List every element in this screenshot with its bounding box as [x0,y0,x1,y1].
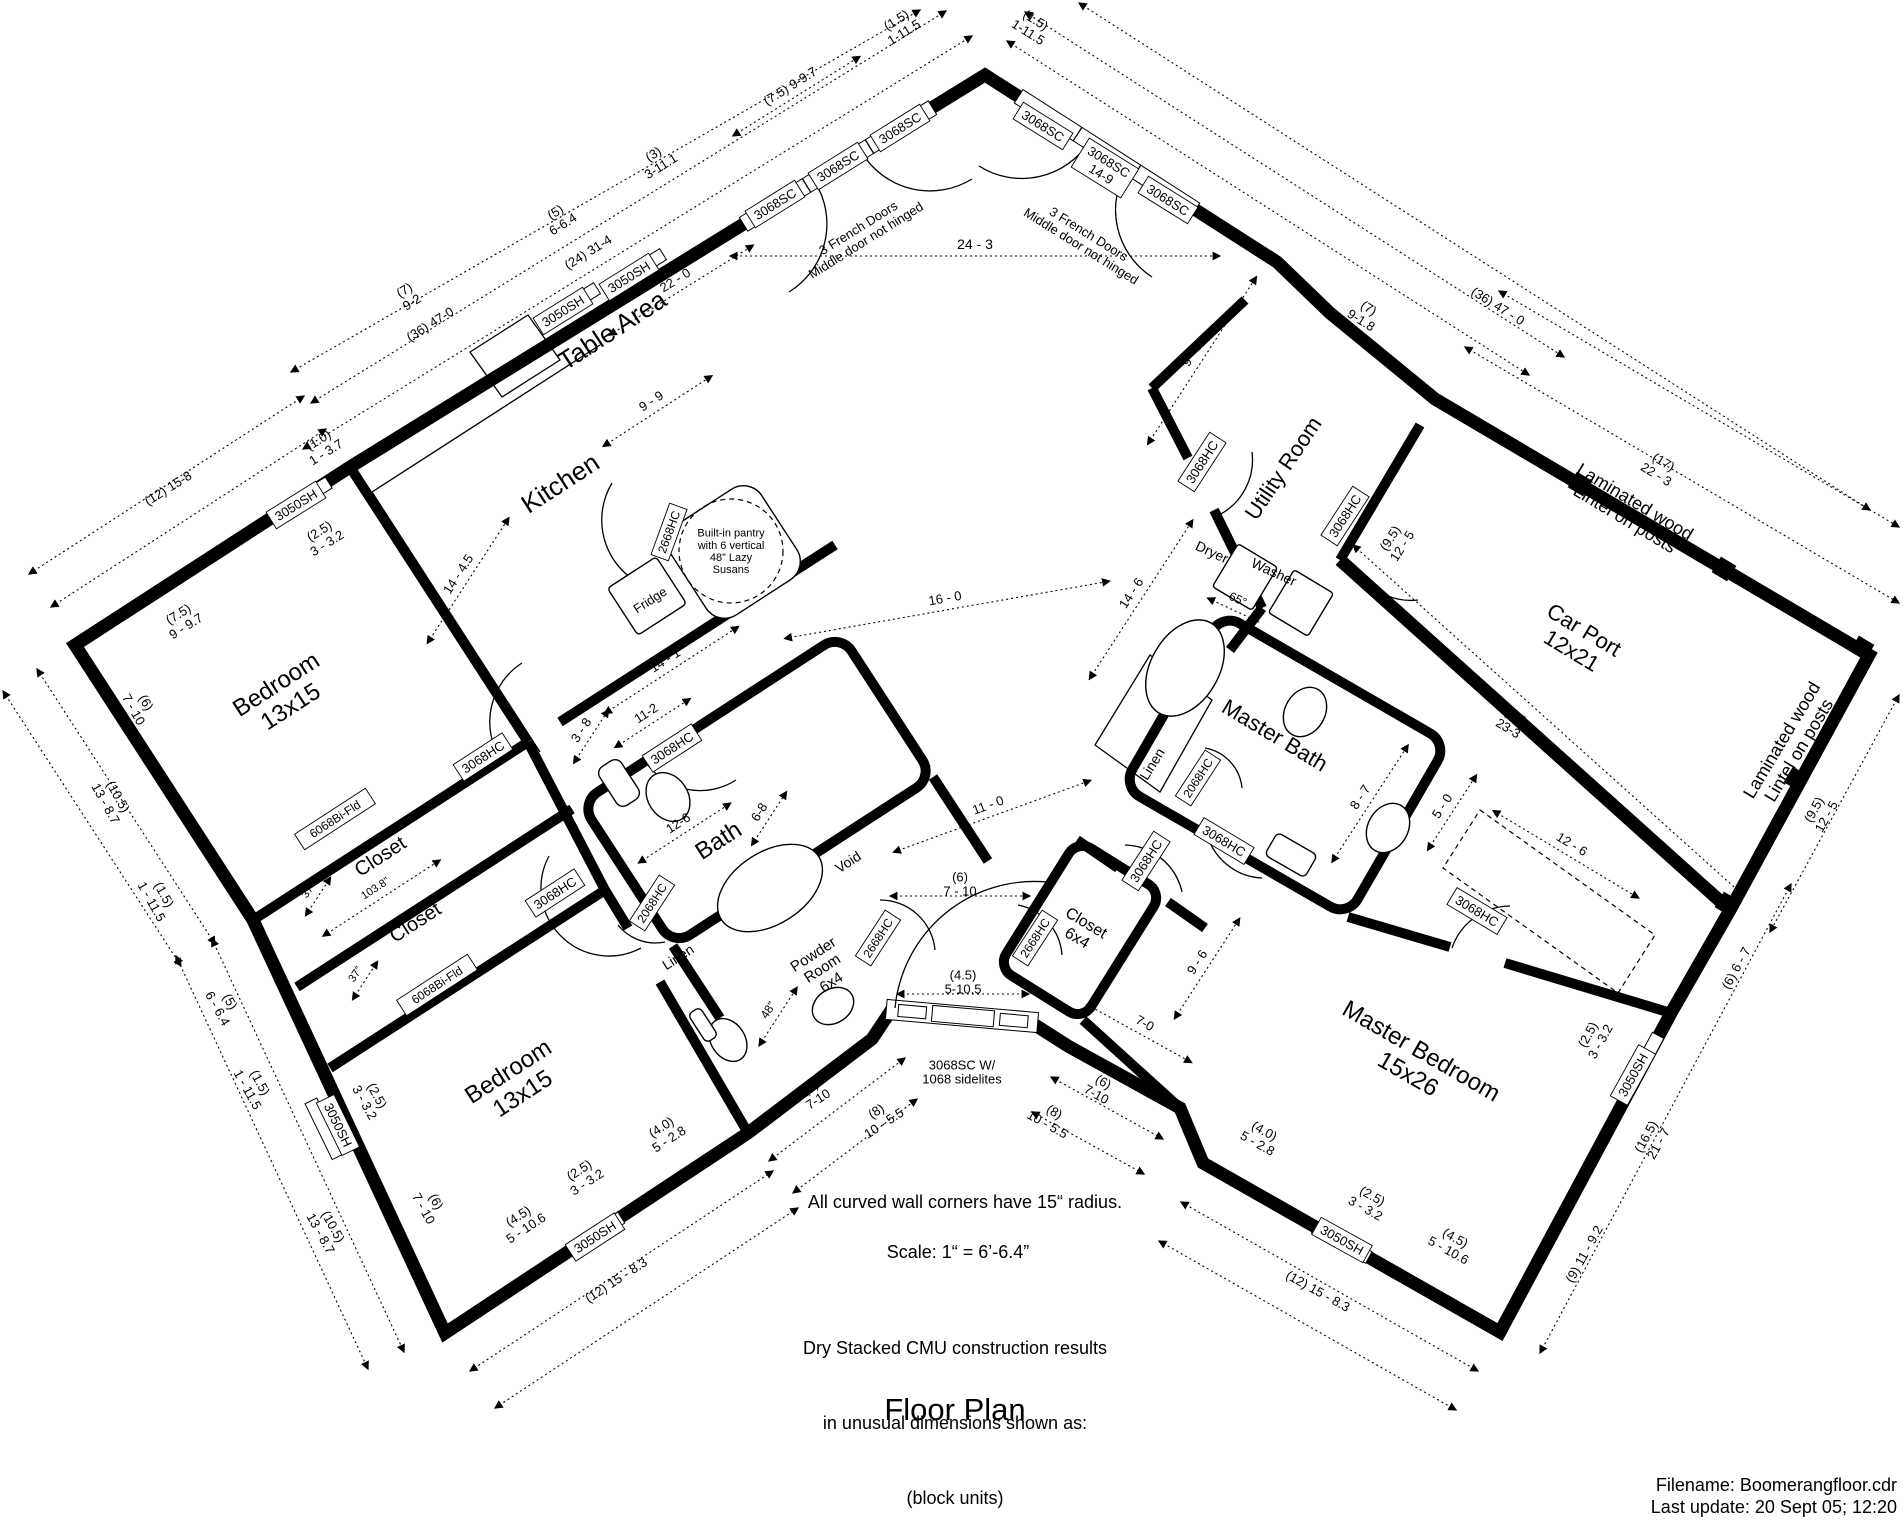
svg-text:(4.5)5-10.5: (4.5)5-10.5 [945,967,982,996]
svg-text:6068Bi-Fld: 6068Bi-Fld [307,797,363,840]
svg-text:9 - 9: 9 - 9 [636,388,666,415]
svg-text:12 - 6: 12 - 6 [1554,829,1590,859]
dim: (1.5)1 - 11.5 [231,1060,278,1112]
svg-text:Car Port12x21: Car Port12x21 [1530,598,1626,682]
svg-text:(8)10 - 5.5: (8)10 - 5.5 [854,1093,907,1142]
dim: (6) 6 - 7 [1718,944,1753,991]
dim: (1.5)1 - 11.5 [135,872,182,924]
note-french-doors-right: 3 French DoorsMiddle door not hinged [1021,193,1149,288]
svg-text:(1.5)1 - 11.5: (1.5)1 - 11.5 [135,872,182,924]
svg-text:16 - 0: 16 - 0 [927,588,962,609]
entry-door [885,999,1038,1032]
svg-text:9 - 6: 9 - 6 [1184,947,1211,977]
svg-text:(6) 6 - 7: (6) 6 - 7 [1718,944,1753,991]
dim: (9.5)12 - 5 [1375,520,1418,564]
dim: (4.0)5 - 2.8 [642,1111,689,1156]
dim: 16 - 0 [781,562,1109,638]
dim: 9 - 9 [592,359,712,446]
dim: (12) 15 - 8.3 [1283,1267,1352,1314]
door-3068hc: 3068HC [1447,888,1507,935]
svg-text:Utility Room: Utility Room [1240,412,1327,524]
dim: (2.5)3 - 3.2 [1572,1015,1615,1061]
dim: 9 - 3 [1131,266,1256,444]
door-2068hc: 2068HC [1175,750,1220,806]
svg-text:14 - 6: 14 - 6 [1116,575,1147,611]
dim: (12) 15-8 [142,468,195,509]
svg-text:(7.5) 9-9.7: (7.5) 9-9.7 [761,64,820,109]
dim: (4.5)5 - 10.6 [496,1198,549,1247]
svg-text:(10.5)13 - 8.7: (10.5)13 - 8.7 [88,774,135,827]
svg-text:(6)7 - 10: (6)7 - 10 [943,869,976,898]
dim: (1.5)1-11.5 [1009,4,1055,48]
room-bedroom-2: Bedroom13x15 [460,1034,571,1132]
svg-text:(12) 15-8: (12) 15-8 [142,468,195,509]
door-3068hc: 3068HC [1178,432,1226,492]
svg-text:24 - 3: 24 - 3 [957,236,993,252]
svg-text:(10.5)13 - 8.7: (10.5)13 - 8.7 [303,1204,350,1257]
carport-south-wall [1340,560,1730,910]
door-3068sc: 3068SC [808,142,868,190]
door-3068hc: 3068HC [1194,818,1254,865]
svg-text:(9.5)12 - 5: (9.5)12 - 5 [1375,520,1418,564]
room-master-bedroom: Master Bedroom15x26 [1324,995,1504,1130]
window-3050sh: 3050SH [565,1213,625,1261]
svg-text:6-8: 6-8 [748,800,771,824]
svg-text:14 - 4.5: 14 - 4.5 [440,551,477,596]
room-kitchen: Kitchen [516,447,605,519]
entry-door-tag: 3068SC W/1068 sidelites [922,1057,1002,1086]
svg-text:(1.0)1 - 3.7: (1.0)1 - 3.7 [299,424,346,468]
scale-note: Scale: 1“ = 6’-6.4” [887,1242,1030,1263]
svg-text:(3)3-11.1: (3)3-11.1 [634,138,680,182]
svg-text:(12) 15 - 8.3: (12) 15 - 8.3 [1283,1267,1352,1314]
floor-plan-page: Table AreaKitchenBedroom13x15ClosetClose… [0,0,1903,1525]
door-3068sc: 3068SC [745,180,805,228]
dim: (1.0)1 - 3.7 [299,424,346,468]
dim: (3)3-11.1 [634,138,680,182]
dim: (24) 31-4 [562,232,615,273]
dim: 7-0 [1087,987,1201,1062]
svg-text:Void: Void [832,848,864,876]
svg-text:Bedroom13x15: Bedroom13x15 [460,1034,571,1132]
svg-text:(1.5)1-11.5: (1.5)1-11.5 [877,4,923,48]
svg-text:Kitchen: Kitchen [516,447,605,519]
dim: (17)22 - 3 [1638,447,1682,489]
filename: Filename: Boomerangfloor.cdr [1651,1474,1897,1496]
svg-text:(2.5)3 - 3.2: (2.5)3 - 3.2 [300,515,347,559]
dim: (7.5)9 - 9.7 [159,598,206,642]
door-6068bifld: 6068Bi-Fld [295,788,376,849]
room-utility: Utility Room [1240,412,1327,524]
window-3050sh: 3050SH [1312,1217,1373,1262]
dim: (4.5)5 - 10.6 [1426,1221,1479,1268]
dim: (10.5)13 - 8.7 [303,1204,350,1257]
door-3068hc: 3068HC [642,724,702,772]
dim: 24 - 3 [730,236,1220,256]
room-car-port: Car Port12x21 [1530,598,1626,682]
note-french-doors-left: 3 French DoorsMiddle door not hinged [798,187,926,282]
dim: (9) 11 - 9.2 [1562,1223,1605,1285]
room-bedroom-1: Bedroom13x15 [228,647,339,745]
svg-text:(4.5)5 - 10.6: (4.5)5 - 10.6 [496,1198,549,1247]
room-bath: Bath [690,816,746,866]
svg-text:(4.5)5 - 10.6: (4.5)5 - 10.6 [1426,1221,1479,1268]
svg-text:11 - 0: 11 - 0 [970,792,1005,817]
dim: (36) 47 - 0 [1469,284,1528,329]
svg-text:(2.5)3 - 3.2: (2.5)3 - 3.2 [349,1076,392,1122]
window-3050sh: 3050SH [266,481,326,529]
svg-text:(1.5)1-11.5: (1.5)1-11.5 [1009,4,1055,48]
svg-text:8 - 7: 8 - 7 [1347,782,1374,812]
dim: (8)10 - 5.5 [1025,1095,1078,1142]
last-update: Last update: 20 Sept 05; 12:20 [1651,1496,1897,1518]
svg-text:(2.5)3 - 3.2: (2.5)3 - 3.2 [1346,1180,1392,1223]
dim: 5 - 0 [1411,764,1476,850]
svg-text:(7)9-2: (7)9-2 [392,279,423,314]
svg-text:(36) 47 - 0: (36) 47 - 0 [1469,284,1528,329]
svg-text:5 - 0: 5 - 0 [1429,791,1456,821]
dim: 48” [743,977,797,1046]
dim: (2.5)3 - 3.2 [1346,1180,1392,1223]
dim: (9.5)12 - 5 [1799,791,1841,834]
dim: (2.5)3 - 3.2 [349,1076,392,1122]
svg-text:(5)6-6.4: (5)6-6.4 [539,198,580,239]
svg-text:3 French DoorsMiddle door not: 3 French DoorsMiddle door not hinged [798,187,926,282]
svg-text:(5)6 - 6.4: (5)6 - 6.4 [202,982,245,1028]
room-void: Void [832,848,864,876]
svg-text:7-0: 7-0 [1133,1012,1157,1034]
svg-text:(7.5)9 - 9.7: (7.5)9 - 9.7 [159,598,206,642]
svg-text:37”: 37” [346,964,365,984]
door-3068sc: 3068SC [870,104,930,152]
svg-text:(12) 15 - 8.3: (12) 15 - 8.3 [582,1254,650,1305]
dim: (16.5)21 - 7 [1631,1118,1673,1162]
dim: (5)6 - 6.4 [202,982,245,1028]
dim: (4.0)5 - 2.8 [1238,1115,1284,1158]
door-2668hc: 2668HC [855,910,900,966]
construction-note-line: (block units) [803,1486,1107,1511]
dim: (12) 15 - 8.3 [582,1254,650,1305]
svg-text:(17)22 - 3: (17)22 - 3 [1638,447,1682,489]
svg-text:(9) 11 - 9.2: (9) 11 - 9.2 [1562,1223,1605,1285]
dim: (6)7 - 10 [409,1183,451,1226]
svg-text:(1.5)1 - 11.5: (1.5)1 - 11.5 [231,1060,278,1112]
svg-text:(2.5)3 - 3.2: (2.5)3 - 3.2 [1572,1015,1615,1061]
svg-text:(2.5)3 - 3.2: (2.5)3 - 3.2 [560,1154,607,1199]
svg-text:3 French DoorsMiddle door not: 3 French DoorsMiddle door not hinged [1021,193,1149,288]
svg-text:(16.5)21 - 7: (16.5)21 - 7 [1631,1118,1673,1162]
svg-text:48”: 48” [758,999,779,1021]
svg-text:(4.0)5 - 2.8: (4.0)5 - 2.8 [1238,1115,1284,1158]
dim: 11 - 0 [887,762,1091,852]
svg-text:Master Bedroom15x26: Master Bedroom15x26 [1324,995,1504,1130]
dim: (10.5)13 - 8.7 [88,774,135,827]
svg-text:(6)7 - 10: (6)7 - 10 [409,1183,451,1226]
dim: (5)6-6.4 [539,198,580,239]
dim: (2.5)3 - 3.2 [300,515,347,559]
construction-note-line: Dry Stacked CMU construction results [803,1336,1107,1361]
dim: (1.5)1-11.5 [877,4,923,48]
svg-text:(24) 31-4: (24) 31-4 [562,232,615,273]
svg-text:(4.0)5 - 2.8: (4.0)5 - 2.8 [642,1111,689,1156]
kitchen-counter [372,492,540,752]
page-title: Floor Plan [884,1392,1025,1428]
dim: (8)10 - 5.5 [854,1093,907,1142]
svg-text:3068SC W/1068 sidelites: 3068SC W/1068 sidelites [922,1057,1002,1086]
svg-text:11-2: 11-2 [631,700,660,726]
radius-note: All curved wall corners have 15“ radius. [808,1192,1122,1213]
svg-text:Bath: Bath [690,816,746,866]
dim: (7.5) 9-9.7 [722,40,860,136]
dim: (2.5)3 - 3.2 [560,1154,607,1199]
svg-text:(9.5)12 - 5: (9.5)12 - 5 [1799,791,1841,834]
dim: (7)9-2 [392,279,423,314]
file-info: Filename: Boomerangfloor.cdr Last update… [1651,1474,1897,1518]
svg-text:Bedroom13x15: Bedroom13x15 [228,647,339,745]
svg-text:(8)10 - 5.5: (8)10 - 5.5 [1025,1095,1078,1142]
